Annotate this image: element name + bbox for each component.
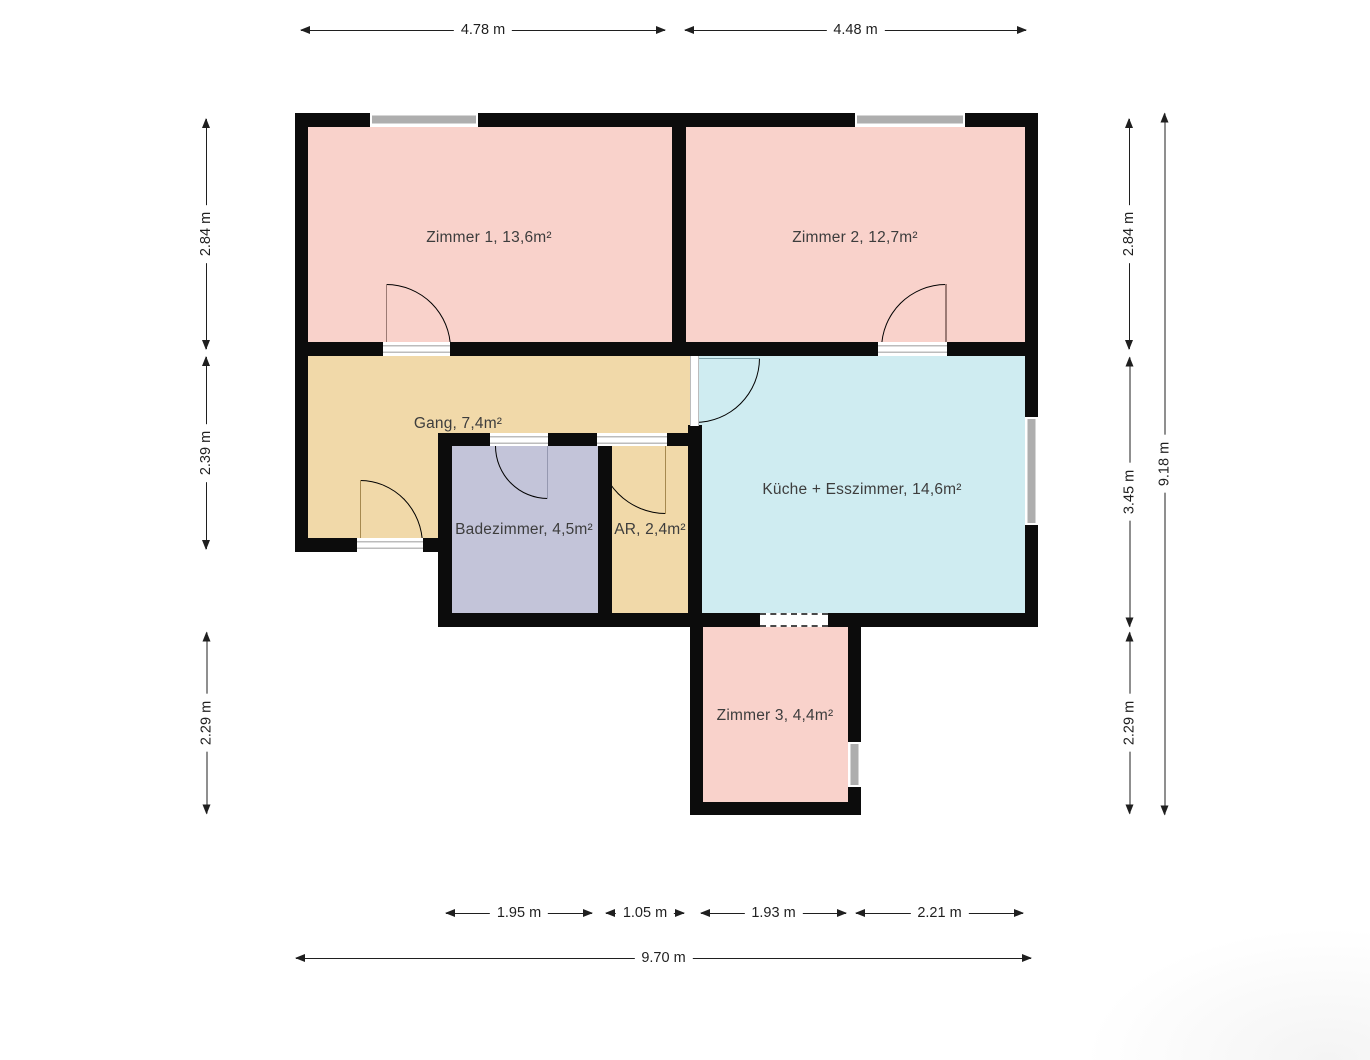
dim-label: 4.78 m	[454, 22, 512, 38]
room-label-badezimmer: Badezimmer, 4,5m²	[455, 521, 593, 539]
door-opening-badezimmer	[490, 433, 548, 446]
dim-label: 1.95 m	[490, 905, 548, 921]
room-label-zimmer2: Zimmer 2, 12,7m²	[792, 229, 918, 247]
wall-ar-kueche-divider	[688, 425, 702, 627]
dim-label: 2.21 m	[910, 905, 968, 921]
arrowhead-right-icon	[1014, 909, 1024, 917]
dim-label: 3.45 m	[1121, 462, 1137, 520]
dim-label: 2.29 m	[1121, 693, 1137, 751]
wall-left	[295, 113, 308, 552]
room-label-gang: Gang, 7,4m²	[414, 415, 502, 433]
arrowhead-right-icon	[583, 909, 593, 917]
dim-label: 9.18 m	[1156, 434, 1172, 492]
opening-kueche-zimmer3-dashed	[760, 613, 828, 627]
arrowhead-left-icon	[700, 909, 710, 917]
arrowhead-left-icon	[202, 540, 210, 550]
corner-shade-decoration	[1090, 930, 1370, 1060]
window-zimmer3-right	[848, 742, 861, 787]
room-label-zimmer1: Zimmer 1, 13,6m²	[426, 229, 552, 247]
room-label-ar: AR, 2,4m²	[614, 521, 686, 539]
arrowhead-left-icon	[1125, 340, 1133, 350]
arrowhead-right-icon	[1125, 356, 1133, 366]
door-leaf-zimmer1	[386, 284, 388, 349]
arrowhead-left-icon	[855, 909, 865, 917]
window-kueche-right	[1025, 417, 1038, 525]
arrowhead-right-icon	[202, 356, 210, 366]
wall-zimmer3-bottom	[690, 802, 861, 815]
wall-zimmer3-left	[690, 627, 703, 815]
wall-badezimmer-ar-divider	[598, 446, 612, 620]
door-leaf-badezimmer	[547, 446, 549, 499]
arrowhead-left-icon	[445, 909, 455, 917]
dim-label: 1.93 m	[744, 905, 802, 921]
dim-label: 2.39 m	[198, 424, 214, 482]
arrowhead-left-icon	[1125, 617, 1133, 627]
dim-label: 1.05 m	[616, 905, 674, 921]
room-label-zimmer3: Zimmer 3, 4,4m²	[717, 707, 834, 725]
door-opening-gang-entrance	[357, 538, 423, 552]
door-leaf-kueche	[695, 358, 760, 360]
door-opening-kueche-passage	[690, 356, 699, 426]
window-zimmer2-top	[855, 113, 965, 127]
arrowhead-left-icon	[1160, 805, 1168, 815]
dim-label: 9.70 m	[634, 950, 692, 966]
door-opening-ar	[597, 433, 667, 446]
door-leaf-ar	[665, 446, 667, 514]
dim-label: 2.84 m	[198, 205, 214, 263]
room-label-kueche: Küche + Esszimmer, 14,6m²	[762, 481, 961, 499]
arrowhead-right-icon	[837, 909, 847, 917]
dim-label: 4.48 m	[826, 22, 884, 38]
wall-badezimmer-left	[438, 433, 452, 627]
floor-plan-canvas: Zimmer 1, 13,6m² Zimmer 2, 12,7m² Gang, …	[0, 0, 1370, 1060]
arrowhead-right-icon	[1017, 26, 1027, 34]
arrowhead-right-icon	[675, 909, 685, 917]
window-zimmer1-top	[370, 113, 478, 127]
arrowhead-left-icon	[1125, 804, 1133, 814]
arrowhead-left-icon	[605, 909, 615, 917]
door-opening-zimmer2	[878, 342, 947, 356]
arrowhead-right-icon	[202, 118, 210, 128]
arrowhead-right-icon	[202, 631, 210, 641]
arrowhead-left-icon	[202, 340, 210, 350]
arrowhead-right-icon	[1022, 954, 1032, 962]
door-opening-zimmer1	[383, 342, 450, 356]
door-leaf-zimmer2	[945, 284, 947, 349]
arrowhead-right-icon	[1125, 631, 1133, 641]
arrowhead-left-icon	[202, 804, 210, 814]
wall-zimmer1-zimmer2-divider	[672, 127, 686, 343]
arrowhead-left-icon	[295, 954, 305, 962]
wall-bottom-long	[438, 613, 1038, 627]
arrowhead-right-icon	[656, 26, 666, 34]
arrowhead-right-icon	[1160, 112, 1168, 122]
arrowhead-right-icon	[1125, 118, 1133, 128]
arrowhead-left-icon	[684, 26, 694, 34]
dim-label: 2.84 m	[1121, 205, 1137, 263]
dim-label: 2.29 m	[198, 693, 214, 751]
arrowhead-left-icon	[300, 26, 310, 34]
wall-right	[1025, 113, 1038, 627]
door-leaf-gang-entrance	[360, 480, 362, 545]
